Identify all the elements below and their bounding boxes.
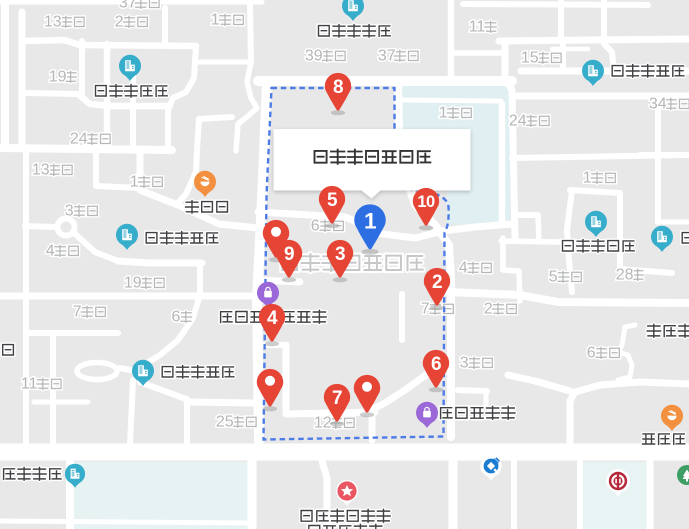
svg-text:1: 1 [583, 170, 592, 187]
svg-text:34: 34 [649, 96, 667, 113]
svg-text:9: 9 [284, 244, 294, 265]
svg-text:25: 25 [216, 414, 234, 431]
svg-text:11: 11 [21, 376, 38, 393]
svg-text:11: 11 [469, 19, 486, 36]
svg-text:7: 7 [73, 304, 82, 321]
svg-text:13: 13 [44, 14, 62, 31]
svg-text:2: 2 [484, 301, 493, 318]
svg-text:2: 2 [432, 272, 442, 293]
svg-text:7: 7 [421, 301, 430, 318]
svg-text:39: 39 [305, 48, 323, 65]
svg-text:6: 6 [431, 354, 441, 375]
svg-text:37: 37 [378, 48, 396, 65]
svg-text:13: 13 [32, 162, 50, 179]
svg-text:4: 4 [267, 308, 278, 329]
svg-text:12: 12 [314, 415, 332, 432]
svg-text:4: 4 [459, 260, 468, 277]
svg-text:4: 4 [46, 243, 55, 260]
svg-text:24: 24 [509, 113, 527, 130]
svg-text:3: 3 [335, 244, 345, 265]
svg-text:2: 2 [115, 14, 124, 31]
svg-text:1: 1 [364, 208, 376, 233]
svg-text:6: 6 [172, 309, 181, 326]
svg-text:6: 6 [311, 218, 320, 235]
svg-text:8: 8 [333, 77, 343, 98]
svg-text:37: 37 [119, 0, 137, 12]
svg-text:1: 1 [211, 12, 220, 29]
svg-text:19: 19 [49, 69, 67, 86]
svg-text:15: 15 [521, 50, 539, 67]
svg-text:6: 6 [587, 345, 596, 362]
svg-text:5: 5 [327, 190, 338, 211]
svg-text:28: 28 [616, 267, 634, 284]
svg-text:10: 10 [417, 193, 435, 211]
svg-text:5: 5 [549, 269, 558, 286]
svg-text:3: 3 [65, 203, 74, 220]
svg-text:7: 7 [332, 388, 342, 409]
svg-text:24: 24 [70, 131, 88, 148]
svg-text:3: 3 [460, 355, 469, 372]
svg-text:1: 1 [439, 105, 448, 122]
svg-text:1: 1 [130, 174, 139, 191]
svg-text:19: 19 [124, 275, 142, 292]
